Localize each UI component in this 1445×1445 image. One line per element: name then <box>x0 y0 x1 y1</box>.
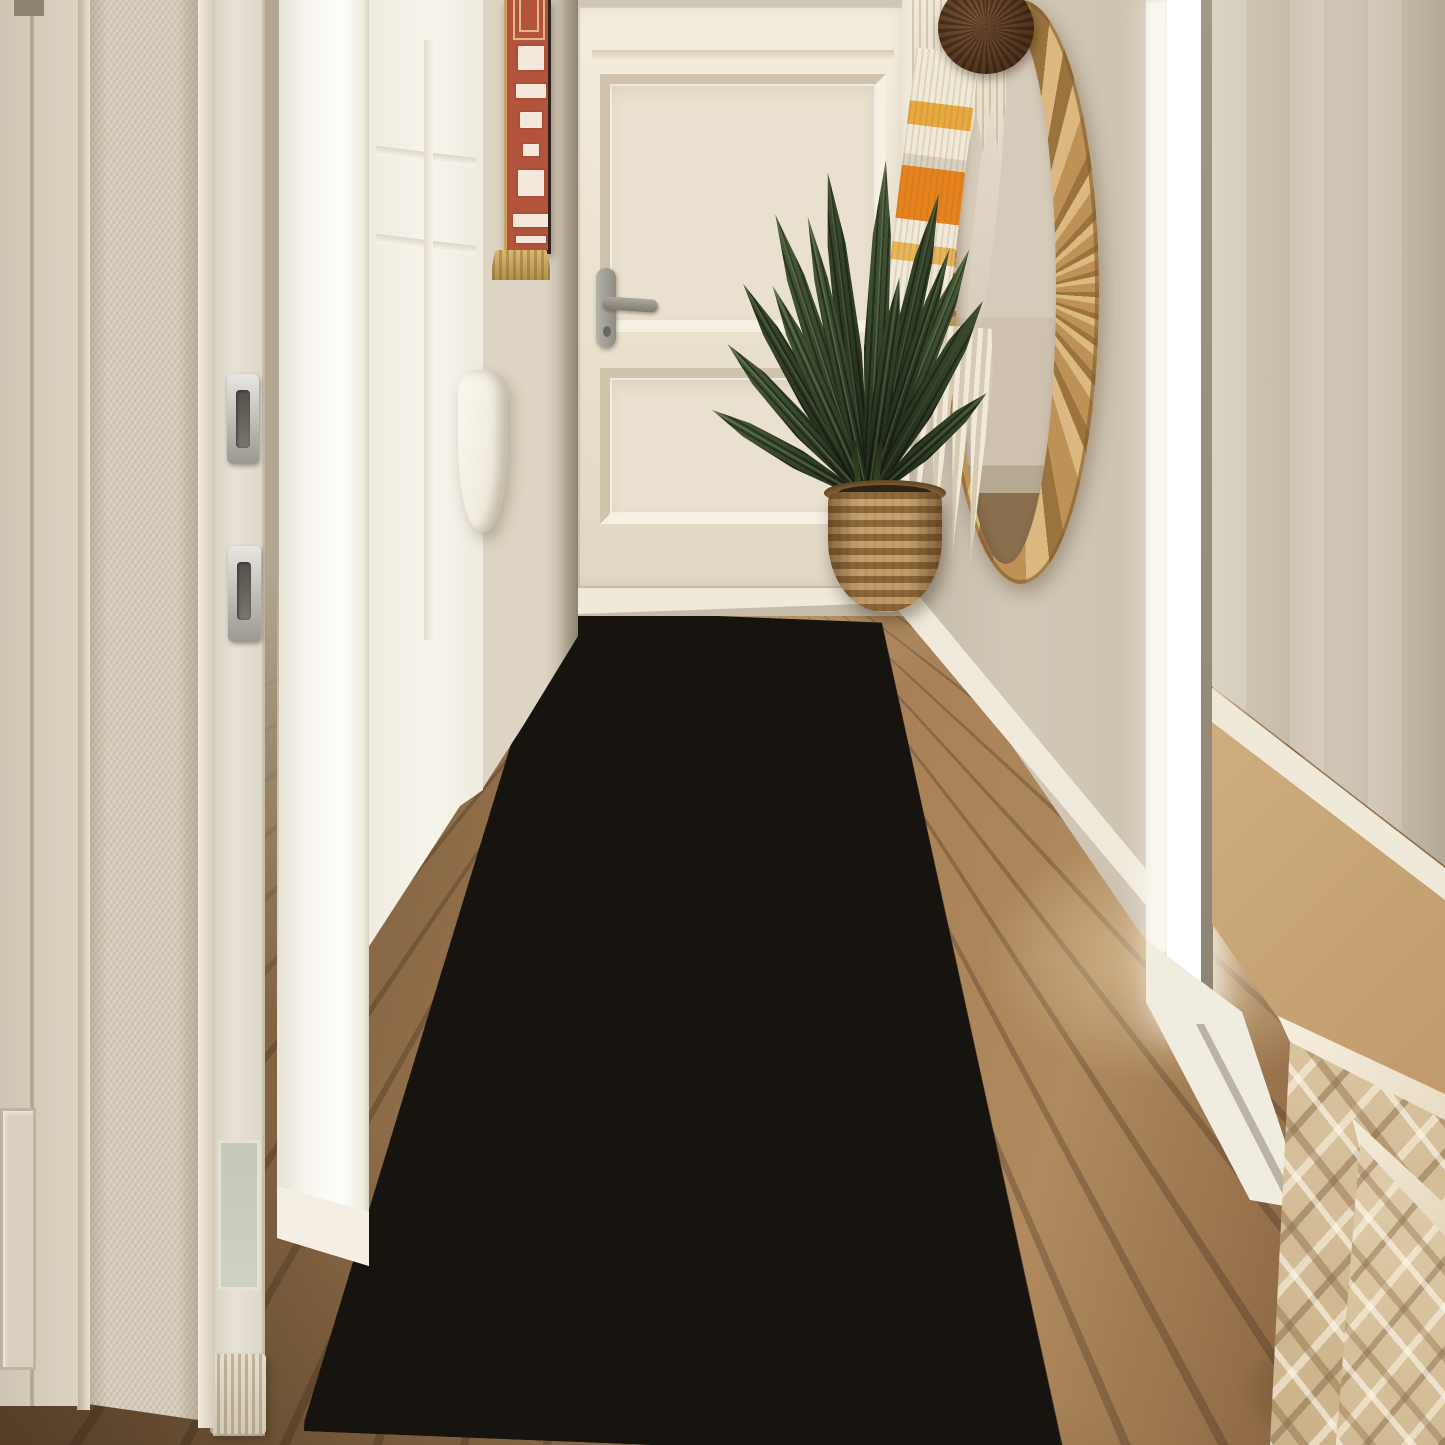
pocket-door-track <box>265 0 279 1030</box>
end-door-panel-upper <box>600 74 886 332</box>
chrome-flush-pull <box>227 374 259 464</box>
panel-shadow-corner <box>14 0 44 16</box>
hanging-cloth <box>458 370 508 532</box>
chrome-edge-lock <box>228 546 261 642</box>
door-keyhole <box>603 326 611 337</box>
poster-text-block <box>520 112 542 128</box>
poster-text-block <box>518 46 544 70</box>
pull-slot <box>237 562 251 620</box>
end-door-molding <box>592 50 894 62</box>
poster-text-block <box>516 236 546 243</box>
doorway-frame-edge <box>1201 0 1213 1046</box>
pull-slot <box>236 390 250 448</box>
textured-wall-panel <box>88 0 198 1420</box>
picture-ledge <box>492 250 550 280</box>
door-jamb-pillar <box>277 0 369 1270</box>
poster-text-block <box>513 214 549 227</box>
poster-text-block <box>518 170 544 196</box>
left-trim <box>198 0 215 1428</box>
poster-text-block <box>516 84 546 98</box>
poster-text-blocks <box>507 0 551 254</box>
sliding-door-glass-inset <box>218 1140 260 1290</box>
doorstop <box>210 1354 266 1434</box>
left-trim <box>77 0 90 1410</box>
vintage-poster <box>504 0 551 254</box>
hallway-product-photo <box>0 0 1445 1445</box>
recessed-panel <box>0 1108 36 1370</box>
far-left-panel-door <box>0 0 78 1406</box>
pocket-door-molding-vertical <box>424 40 433 640</box>
poster-text-block <box>523 144 539 156</box>
